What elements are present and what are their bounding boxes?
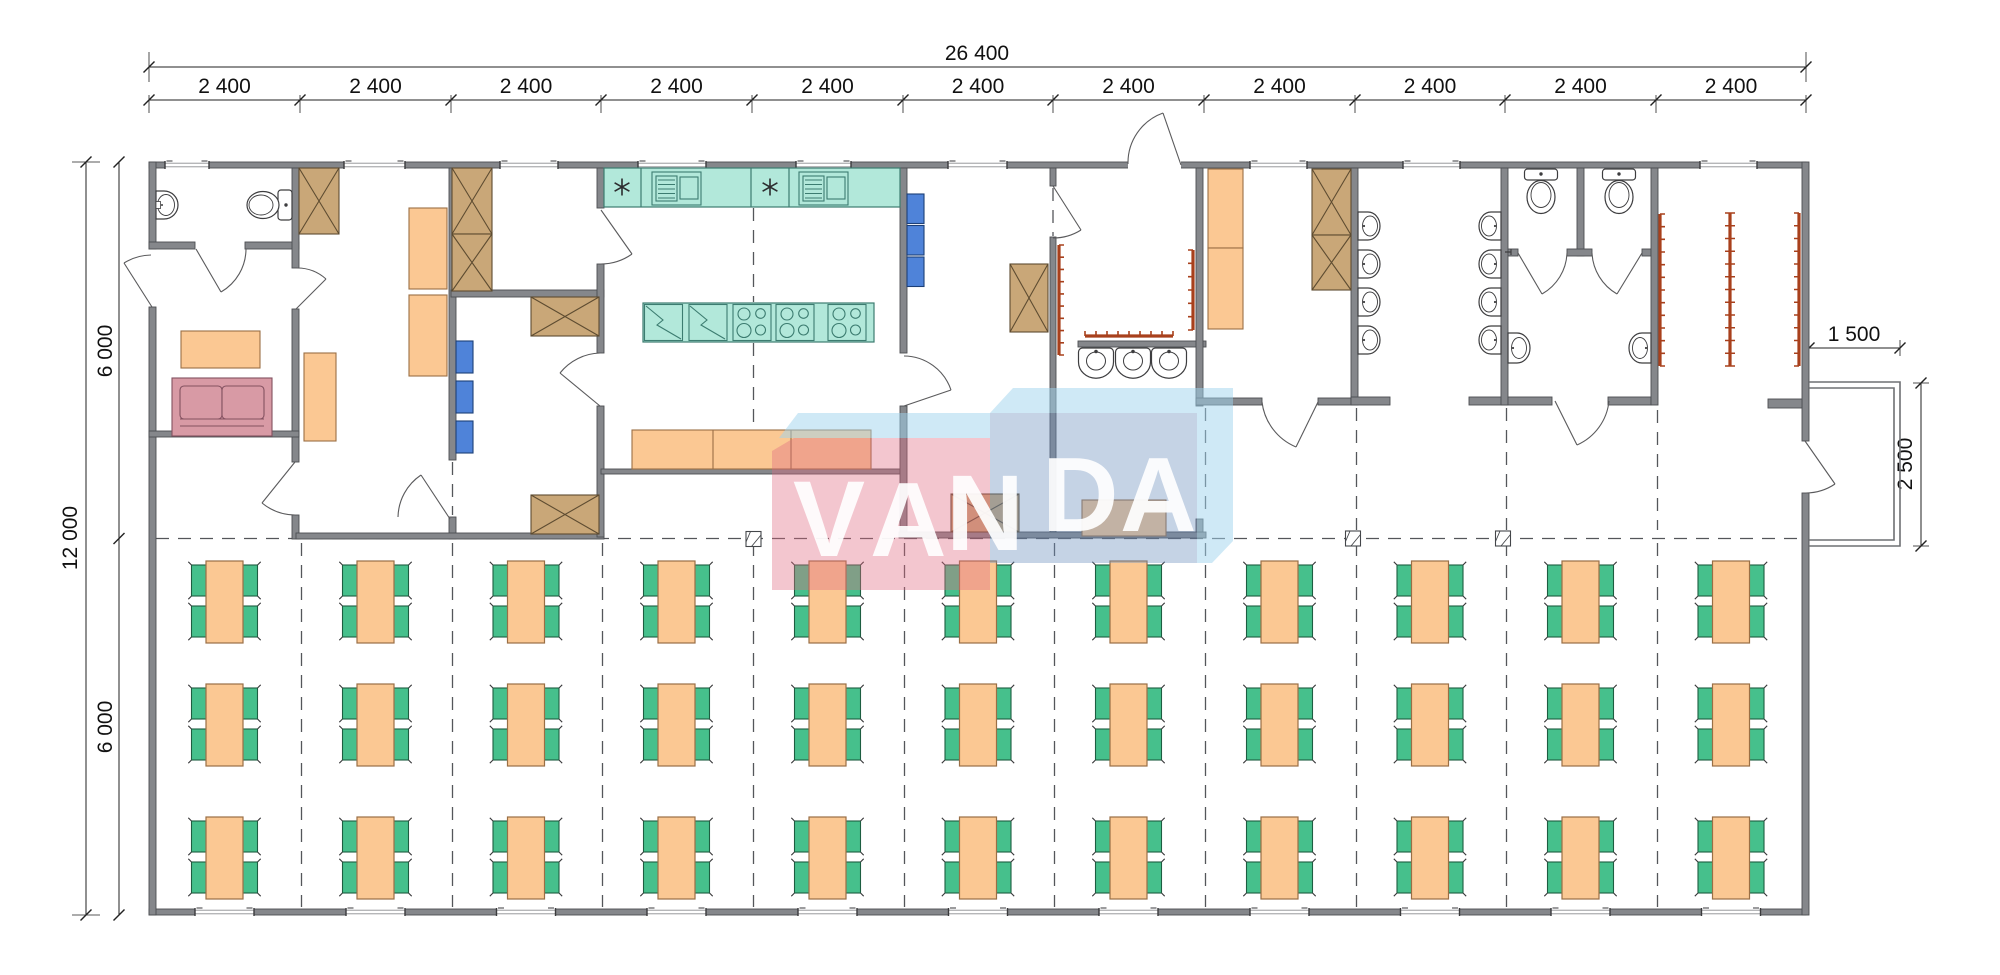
svg-text:26 400: 26 400 — [945, 42, 1009, 65]
svg-text:2 400: 2 400 — [1554, 75, 1607, 98]
svg-text:1 500: 1 500 — [1828, 323, 1881, 346]
svg-text:2 400: 2 400 — [1404, 75, 1457, 98]
svg-text:2 400: 2 400 — [500, 75, 553, 98]
svg-text:2 400: 2 400 — [952, 75, 1005, 98]
svg-text:2 500: 2 500 — [1894, 438, 1917, 491]
svg-text:2 400: 2 400 — [198, 75, 251, 98]
svg-text:6 000: 6 000 — [94, 325, 117, 378]
svg-text:2 400: 2 400 — [1705, 75, 1758, 98]
svg-text:A: A — [870, 461, 947, 579]
svg-text:V: V — [793, 458, 865, 579]
svg-text:2 400: 2 400 — [1102, 75, 1155, 98]
svg-text:D: D — [1042, 436, 1119, 554]
svg-text:2 400: 2 400 — [801, 75, 854, 98]
svg-text:2 400: 2 400 — [1253, 75, 1306, 98]
svg-text:N: N — [946, 452, 1024, 573]
svg-text:2 400: 2 400 — [349, 75, 402, 98]
svg-text:A: A — [1120, 436, 1197, 554]
svg-text:12 000: 12 000 — [59, 506, 82, 570]
svg-text:6 000: 6 000 — [94, 701, 117, 754]
svg-text:2 400: 2 400 — [650, 75, 703, 98]
